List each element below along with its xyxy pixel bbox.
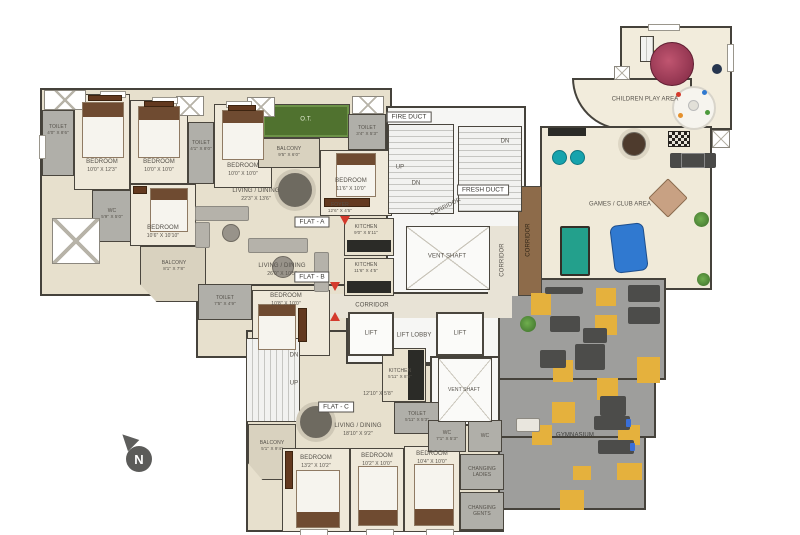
wardrobe-icon <box>298 308 307 342</box>
pouf <box>712 64 722 74</box>
window <box>426 529 454 535</box>
ball <box>688 100 699 111</box>
room-label-toilet: TOILET5'11" X 5'3" <box>405 411 429 423</box>
compass-n-label: N <box>134 452 143 467</box>
children-play-label: CHILDREN PLAY AREA <box>612 96 679 104</box>
room-label-bedroom: BEDROOM10'0" X 10'0" <box>143 159 175 173</box>
dn-label: DN <box>290 352 299 360</box>
room-label-bedroom: BEDROOM13'2" X 10'2" <box>300 455 332 469</box>
dining-table-icon <box>278 173 312 207</box>
room-label-kitchen: KITCHEN5'11" X 8'8" <box>388 368 412 380</box>
wardrobe-icon <box>133 186 147 194</box>
dn-label: DN <box>501 138 510 146</box>
wardrobe-icon <box>144 101 174 107</box>
table-tennis <box>670 153 716 168</box>
changing-ladies-label: CHANGING LADIES <box>462 466 502 479</box>
bed-icon <box>296 470 340 528</box>
bed-icon <box>414 464 454 526</box>
gym-mat <box>552 402 575 423</box>
shaft-hatch <box>352 96 384 114</box>
flat-b-tag: FLAT - B <box>294 272 329 283</box>
gym-mat <box>531 293 551 315</box>
lift-label: LIFT <box>454 330 467 338</box>
gymnasium-label: GYMNASIUM <box>556 432 594 440</box>
sofa-icon <box>195 206 249 221</box>
compass-icon: N <box>126 446 152 472</box>
games-club-label: GAMES / CLUB AREA <box>589 201 651 209</box>
gym-mat <box>560 490 584 510</box>
room-label-wc: WC5'9" X 5'0" <box>101 208 123 220</box>
gym-equipment <box>575 344 605 370</box>
room-label-bedroom: BEDROOM10'6" X 10'10" <box>147 225 179 239</box>
foyer-dims: 12'10" X 5'8" <box>363 391 393 397</box>
room-label-bedroom: BEDROOM10'2" X 10'0" <box>361 453 393 467</box>
plant-icon <box>694 212 709 227</box>
gym-desk <box>516 418 540 432</box>
treadmill <box>598 440 634 454</box>
room-label-terrace: O.T. <box>300 116 311 124</box>
wardrobe-icon <box>88 95 122 101</box>
lounge-chair <box>552 150 567 165</box>
kitchen-counter <box>347 240 391 252</box>
gym-equipment <box>628 285 660 302</box>
toilet-room <box>188 122 214 184</box>
gym-equipment <box>545 287 583 294</box>
ball <box>705 110 710 115</box>
gym-mat <box>596 288 616 306</box>
room-label-toilet: TOILET3'4" X 5'3" <box>356 125 378 137</box>
shaft-hatch <box>176 96 204 116</box>
vent-shaft-label: VENT SHAFT <box>428 253 466 261</box>
kitchen-counter <box>347 281 391 293</box>
gym-mat <box>573 466 591 480</box>
room-label-living: LIVING / DINING22'3" X 13'6" <box>232 188 279 202</box>
bed-icon <box>82 102 124 158</box>
flat-a-tag: FLAT - A <box>294 217 329 228</box>
shaft-hatch <box>44 90 86 110</box>
plant-icon <box>520 316 536 332</box>
entry-arrow <box>340 216 350 225</box>
room-label-toilet: TOILET4'0" X 8'6" <box>47 124 69 136</box>
gym-equipment <box>550 316 580 332</box>
room-label-balcony: BALCONY9'5" X 6'0" <box>277 146 302 158</box>
room-label-bedroom: BEDROOM10'0" X 12'3" <box>86 159 118 173</box>
corridor-label: CORRIDOR <box>499 243 507 276</box>
flat-c-tag: FLAT - C <box>318 402 354 413</box>
treadmill-console <box>630 443 635 451</box>
room-label-living: LIVING / DINING18'10" X 9'2" <box>334 423 381 437</box>
sofa-icon <box>195 222 210 248</box>
room-label-kitchen: KITCHEN11'6" X 4'5" <box>354 262 378 274</box>
coffee-table-icon <box>222 224 240 242</box>
ball <box>678 113 683 118</box>
room-label-bedroom: BEDROOM10'8" X 10'0" <box>270 293 302 307</box>
dn-label: DN <box>412 180 421 188</box>
lift-label: LIFT <box>365 330 378 338</box>
entry-arrow <box>330 282 340 291</box>
chess-table <box>668 131 690 147</box>
reception-counter <box>548 128 586 136</box>
room-label-balcony: BALCONY8'1" X 7'8" <box>162 260 187 272</box>
room-label-bedroom: BEDROOM10'4" X 10'0" <box>416 451 448 465</box>
gym-equipment <box>583 328 607 343</box>
fresh-duct-label: FRESH DUCT <box>457 185 509 196</box>
play-rug <box>650 42 694 86</box>
floor-plan: FIRE DUCT FRESH DUCT <box>0 0 800 535</box>
up-label: UP <box>290 380 299 388</box>
shaft-hatch <box>52 218 100 264</box>
entry-arrow <box>330 312 340 321</box>
corridor-label: CORRIDOR <box>355 302 388 310</box>
up-label: UP <box>396 164 405 172</box>
wardrobe-icon <box>285 451 293 489</box>
bed-icon <box>138 106 180 158</box>
room-label-kitchen: KITCHEN9'0" X 5'11" <box>354 224 378 236</box>
gym-equipment <box>600 396 626 416</box>
window <box>39 135 46 159</box>
room-label-toilet: TOILET7'5" X 4'9" <box>214 295 236 307</box>
gym-equipment <box>628 307 660 324</box>
window <box>366 529 394 535</box>
treadmill <box>594 416 630 430</box>
balcony <box>140 246 206 302</box>
bed-icon <box>222 110 264 160</box>
toilet-room <box>42 110 74 176</box>
round-table-icon <box>622 132 646 156</box>
shaft-hatch <box>614 66 630 80</box>
room-label-wc: WC <box>481 433 490 439</box>
room-label-toilet: TOILET4'1" X 8'0" <box>190 140 212 152</box>
vent-shaft-label: VENT SHAFT <box>448 387 480 393</box>
shaft-hatch <box>712 130 730 148</box>
gym-mat <box>617 463 642 480</box>
ball <box>702 90 707 95</box>
staircase <box>458 126 522 212</box>
window <box>727 44 734 72</box>
lounge-chair <box>570 150 585 165</box>
room-label-bedroom: BEDROOM11'6" X 10'0" <box>335 178 367 192</box>
fire-duct-label: FIRE DUCT <box>387 112 432 123</box>
lift-lobby-label: LIFT LOBBY <box>397 332 432 340</box>
room-label-wc: WC7'1" X 5'3" <box>436 430 458 442</box>
corridor-label: CORRIDOR <box>525 223 533 256</box>
pool-table <box>560 226 590 276</box>
window <box>648 24 680 31</box>
plant-icon <box>697 273 710 286</box>
wardrobe-icon <box>228 105 256 111</box>
bed-icon <box>358 466 398 526</box>
gym-mat <box>637 357 660 383</box>
room-label-balcony: BALCONY5'1" X 9'4" <box>260 440 285 452</box>
air-hockey-table <box>609 222 649 274</box>
treadmill-console <box>626 419 631 427</box>
room-label-foyer: FOYER12'6" X 4'5" <box>328 202 352 214</box>
changing-gents-label: CHANGING GENTS <box>462 505 502 518</box>
gym-equipment <box>540 350 566 368</box>
sofa-icon <box>248 238 308 253</box>
window <box>300 529 328 535</box>
bed-icon <box>258 304 296 350</box>
room-label-bedroom: BEDROOM10'0" X 10'0" <box>227 163 259 177</box>
